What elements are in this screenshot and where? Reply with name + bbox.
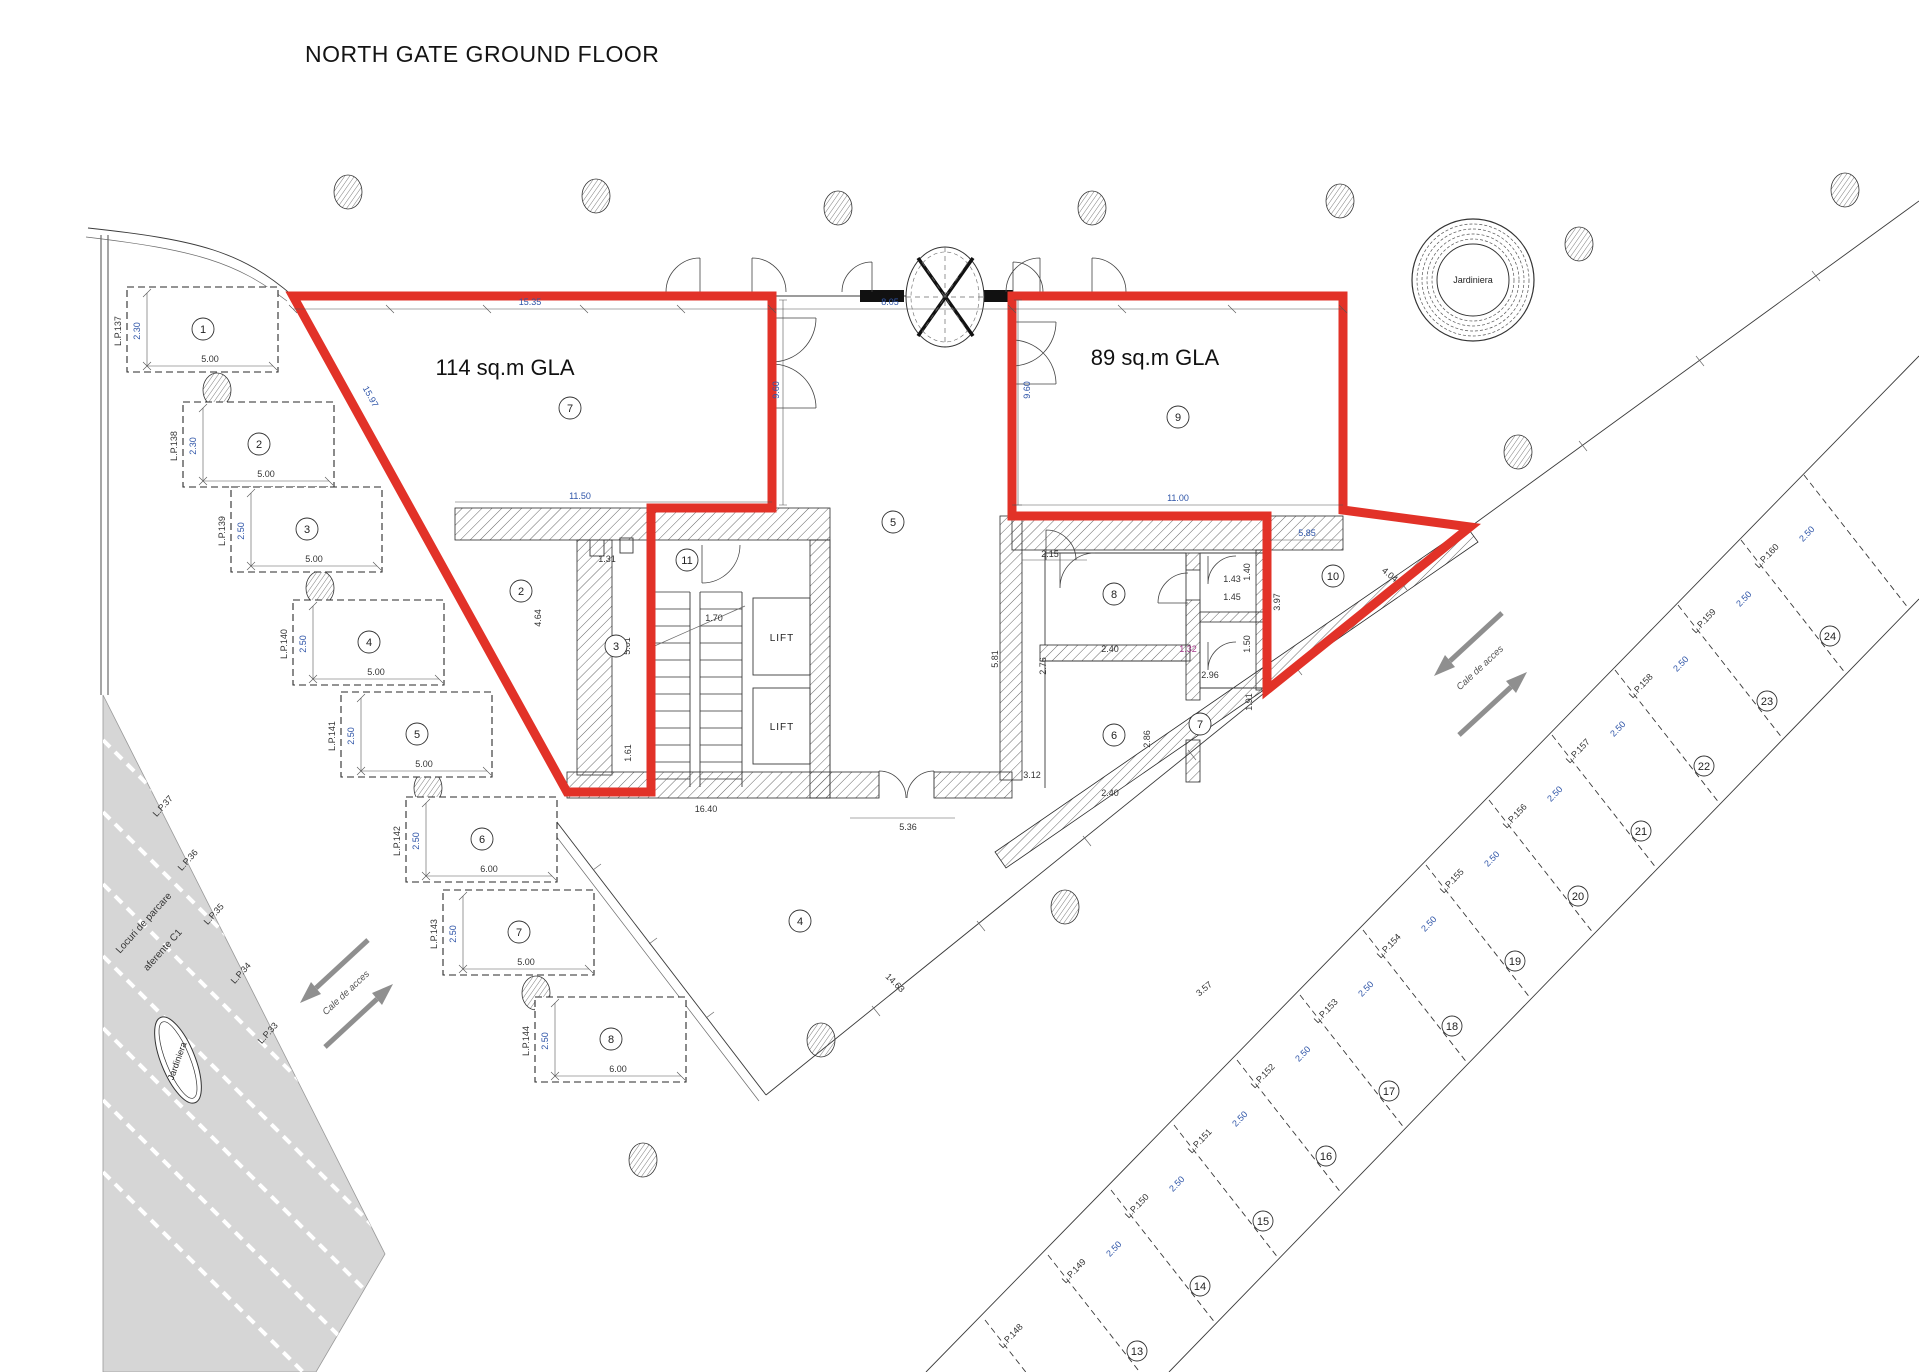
dim-label: 15.97	[361, 384, 381, 409]
room8-door	[1060, 553, 1095, 588]
parking-stall: L.P.156 2.50 20	[1501, 784, 1588, 906]
room-circle-10: 10	[1322, 565, 1344, 587]
svg-text:22: 22	[1698, 761, 1710, 773]
svg-text:2.50: 2.50	[236, 522, 246, 540]
svg-text:L.P.153: L.P.153	[1312, 997, 1340, 1025]
room-circle-8: 8	[1103, 583, 1125, 605]
svg-text:L.P.151: L.P.151	[1186, 1127, 1214, 1155]
jardiniera-top-label: Jardiniera	[1453, 275, 1493, 285]
parking-stall: L.P.155 2.50 19	[1438, 849, 1525, 971]
retail-left-gla: 114 sq.m GLA	[436, 355, 575, 380]
stair-core: LIFT LIFT	[650, 592, 810, 787]
parking-stall: L.P.159 2.50 23	[1690, 589, 1777, 711]
svg-text:7: 7	[1197, 719, 1203, 731]
retail-right-side-door	[1012, 322, 1056, 366]
dim-label: 1.43	[1223, 574, 1241, 584]
svg-text:14: 14	[1194, 1281, 1206, 1293]
parking-stall: L.P.149 2.50 13	[1060, 1239, 1147, 1361]
svg-text:L.P.152: L.P.152	[1249, 1062, 1277, 1090]
gray-parking-area: L.P.37 L.P.36 L.P.35 L.P.34 L.P.33 Locur…	[103, 695, 433, 1372]
svg-text:18: 18	[1446, 1021, 1458, 1033]
retail-right-outline	[1012, 296, 1470, 690]
svg-text:6.00: 6.00	[480, 864, 498, 874]
lift-label: LIFT	[770, 633, 795, 644]
parking-stall: L.P.150 2.50 14	[1123, 1174, 1210, 1296]
room-circle-3: 3	[605, 635, 627, 657]
parking-stall-label: L.P.148	[997, 1322, 1025, 1350]
svg-text:L.P.150: L.P.150	[1123, 1192, 1151, 1220]
svg-text:L.P.142: L.P.142	[392, 826, 402, 856]
svg-text:5.00: 5.00	[517, 957, 535, 967]
unit-circle-7: 7	[559, 397, 581, 419]
jardiniera-planter: Jardiniera	[1412, 219, 1534, 341]
svg-text:19: 19	[1509, 956, 1521, 968]
dim-label: 9.60	[771, 381, 781, 399]
atrium-bottom-door	[879, 771, 906, 798]
svg-text:2.50: 2.50	[1482, 849, 1501, 869]
parking-stall: 1 L.P.137 2.30 5.00	[113, 287, 278, 372]
svg-text:2.50: 2.50	[1734, 589, 1753, 609]
parking-stall: 3 L.P.139 2.50 5.00	[217, 487, 382, 572]
dim-label: 2.40	[1101, 644, 1119, 654]
svg-text:L.P.157: L.P.157	[1564, 737, 1592, 765]
entrance-side-door-left	[842, 262, 872, 292]
svg-text:5.00: 5.00	[367, 667, 385, 677]
room-numbers: 2 3 11 5 4 8 6 7 10	[510, 511, 1344, 932]
parking-stall: L.P.157 2.50 21	[1564, 719, 1651, 841]
svg-text:6: 6	[1111, 730, 1117, 742]
svg-text:11: 11	[681, 555, 692, 567]
svg-text:2.50: 2.50	[448, 925, 458, 943]
svg-text:L.P.139: L.P.139	[217, 516, 227, 546]
svg-text:24: 24	[1824, 631, 1836, 643]
svg-text:L.P.138: L.P.138	[169, 431, 179, 461]
dim-label: 2.96	[1201, 670, 1219, 680]
room-circle-4: 4	[789, 910, 811, 932]
access-arrow-set-right: Cale de acces	[1434, 613, 1527, 735]
core-top-wall	[455, 508, 830, 540]
svg-text:4: 4	[797, 916, 803, 928]
svg-text:8: 8	[608, 1034, 614, 1046]
svg-text:5.00: 5.00	[201, 354, 219, 364]
svg-text:L.P.140: L.P.140	[279, 629, 289, 659]
parking-stall: 2 L.P.138 2.30 5.00	[169, 402, 334, 487]
svg-text:10: 10	[1327, 571, 1339, 583]
retail-left-side-door	[772, 318, 816, 362]
svg-text:2.50: 2.50	[1293, 1044, 1312, 1064]
retail-right-top-door	[1092, 258, 1126, 292]
room-circle-11: 11	[676, 549, 698, 571]
right-parking-strip: L.P.148 L.P.149 2.50 13 L.P.150 2.50 14 …	[985, 475, 1909, 1372]
svg-text:15: 15	[1257, 1216, 1269, 1228]
svg-text:2.50: 2.50	[1797, 524, 1816, 544]
dim-label: 4.64	[533, 609, 543, 627]
rightwing-wall-seg	[1186, 740, 1200, 782]
room-circle-5: 5	[882, 511, 904, 533]
dim-label: 9.60	[1022, 381, 1032, 399]
svg-text:9: 9	[1175, 412, 1181, 424]
parking-stall: L.P.152 2.50 16	[1249, 1044, 1336, 1166]
dim-label: 5.81	[990, 650, 1000, 668]
dim-label: 2.86	[1142, 730, 1152, 748]
dim-label: 11.00	[1167, 493, 1189, 503]
svg-text:L.P.141: L.P.141	[327, 721, 337, 751]
svg-text:2.50: 2.50	[1356, 979, 1375, 999]
atrium-bottom-door	[907, 771, 934, 798]
svg-text:2.50: 2.50	[1104, 1239, 1123, 1259]
svg-text:17: 17	[1383, 1086, 1395, 1098]
retail-left-top-door	[666, 258, 700, 292]
svg-text:2.50: 2.50	[298, 635, 308, 653]
svg-text:L.P.137: L.P.137	[113, 316, 123, 346]
dim-label: 2.15	[1041, 549, 1059, 559]
svg-text:2.30: 2.30	[132, 322, 142, 340]
svg-text:L.P.158: L.P.158	[1627, 672, 1655, 700]
floor-plan-page: L.P.37 L.P.36 L.P.35 L.P.34 L.P.33 Locur…	[0, 0, 1919, 1372]
dim-label: 8.05	[881, 297, 899, 307]
retail-right-side-door	[1012, 340, 1056, 384]
dim-label: 2.76	[1038, 657, 1048, 675]
dim-label: 1.91	[1244, 693, 1254, 711]
svg-text:3: 3	[304, 524, 310, 536]
dim-label: 3.57	[1194, 979, 1214, 998]
svg-text:L.P.156: L.P.156	[1501, 802, 1529, 830]
svg-text:5.00: 5.00	[305, 554, 323, 564]
trees	[203, 173, 1859, 1177]
svg-text:2.50: 2.50	[411, 832, 421, 850]
parking-stall: 4 L.P.140 2.50 5.00	[279, 600, 444, 685]
svg-text:21: 21	[1635, 826, 1647, 838]
svg-text:6: 6	[479, 834, 485, 846]
parking-strip-lower-line	[1169, 599, 1919, 1372]
svg-text:2.50: 2.50	[1419, 914, 1438, 934]
dim-label: 1.31	[598, 554, 616, 564]
svg-text:13: 13	[1131, 1346, 1143, 1358]
svg-text:2: 2	[256, 439, 262, 451]
rightwing-top-wall	[1012, 516, 1343, 550]
svg-text:2: 2	[518, 586, 524, 598]
dim-label: 5.36	[899, 822, 917, 832]
revolving-door	[906, 247, 984, 347]
svg-text:2.50: 2.50	[1167, 1174, 1186, 1194]
svg-text:L.P.159: L.P.159	[1690, 607, 1718, 635]
dim-label: 1.70	[705, 613, 723, 623]
retail-left-top-door	[752, 258, 786, 292]
svg-text:16: 16	[1320, 1151, 1332, 1163]
dim-label: 1.40	[1242, 563, 1252, 581]
wc-door	[1208, 642, 1236, 670]
page-title: NORTH GATE GROUND FLOOR	[305, 41, 659, 67]
parking-stall: L.P.153 2.50 17	[1312, 979, 1399, 1101]
dim-label: 3.12	[1023, 770, 1041, 780]
dim-label: 5.85	[1298, 528, 1316, 538]
core-lobby-door	[702, 545, 740, 583]
dim-label: 15.35	[519, 297, 542, 307]
lift-label: LIFT	[770, 722, 795, 733]
svg-text:2.50: 2.50	[540, 1032, 550, 1050]
svg-text:8: 8	[1111, 589, 1117, 601]
leftwing-inner-wall	[577, 540, 612, 775]
dim-label: 16.40	[695, 804, 718, 814]
dim-label: 11.50	[569, 491, 591, 501]
svg-text:2.50: 2.50	[1545, 784, 1564, 804]
svg-text:6.00: 6.00	[609, 1064, 627, 1074]
svg-text:7: 7	[516, 927, 522, 939]
parking-stall: L.P.160 2.50 24	[1753, 524, 1840, 646]
retail-right-gla: 89 sq.m GLA	[1091, 345, 1220, 370]
rightwing-wall-seg	[1186, 553, 1200, 570]
room-circle-6: 6	[1103, 724, 1125, 746]
dim-label: 1.61	[623, 744, 633, 762]
parking-stall: 8 L.P.144 2.50 6.00	[521, 997, 686, 1082]
corridor-door	[1158, 573, 1188, 603]
parking-stall: L.P.158 2.50 22	[1627, 654, 1714, 776]
svg-text:2.50: 2.50	[1608, 719, 1627, 739]
room-circle-2: 2	[510, 580, 532, 602]
svg-text:2.50: 2.50	[1230, 1109, 1249, 1129]
unit-circle-9: 9	[1167, 406, 1189, 428]
svg-text:3: 3	[613, 641, 619, 653]
svg-text:L.P.143: L.P.143	[429, 919, 439, 949]
svg-text:L.P.160: L.P.160	[1753, 542, 1781, 570]
parking-stall: 6 L.P.142 2.50 6.00	[392, 797, 557, 882]
left-road-line	[101, 235, 108, 695]
svg-text:1: 1	[200, 324, 206, 336]
parking-stall: 7 L.P.143 2.50 5.00	[429, 890, 594, 975]
room-circle-7b: 7	[1189, 713, 1211, 735]
parking-stall: 5 L.P.141 2.50 5.00	[327, 692, 492, 777]
parking-stall: L.P.154 2.50 18	[1375, 914, 1462, 1036]
svg-text:5: 5	[414, 729, 420, 741]
core-atrium-wall	[810, 540, 830, 798]
svg-text:L.P.155: L.P.155	[1438, 867, 1466, 895]
svg-text:20: 20	[1572, 891, 1584, 903]
svg-text:2.50: 2.50	[346, 727, 356, 745]
svg-text:L.P.149: L.P.149	[1060, 1257, 1088, 1285]
top-road-curve	[88, 228, 293, 296]
dim-label: 1.50	[1242, 635, 1252, 653]
svg-text:7: 7	[567, 403, 573, 415]
svg-text:4: 4	[366, 637, 372, 649]
svg-text:5: 5	[890, 517, 896, 529]
floor-plan-drawing: L.P.37 L.P.36 L.P.35 L.P.34 L.P.33 Locur…	[0, 0, 1919, 1372]
dim-label: 3.97	[1272, 593, 1282, 611]
parking-strip-upper-line	[926, 356, 1919, 1372]
dim-label: 2.40	[1101, 788, 1119, 798]
parking-dividers	[985, 475, 1909, 1372]
dim-label: 1.32	[1179, 644, 1197, 654]
svg-text:L.P.144: L.P.144	[521, 1026, 531, 1056]
svg-text:5.00: 5.00	[257, 469, 275, 479]
atrium-rightwing-wall	[1000, 516, 1022, 780]
parking-stall: L.P.151 2.50 15	[1186, 1109, 1273, 1231]
svg-text:5.00: 5.00	[415, 759, 433, 769]
retail-right-top-door	[1006, 258, 1040, 292]
svg-text:L.P.154: L.P.154	[1375, 932, 1403, 960]
access-arrow-set-left: Cale de acces	[300, 940, 393, 1047]
svg-text:2.50: 2.50	[1671, 654, 1690, 674]
dim-label: 1.45	[1223, 592, 1241, 602]
svg-text:2.30: 2.30	[188, 437, 198, 455]
retail-labels: 114 sq.m GLA 7 89 sq.m GLA 9	[436, 345, 1220, 428]
svg-text:23: 23	[1761, 696, 1773, 708]
